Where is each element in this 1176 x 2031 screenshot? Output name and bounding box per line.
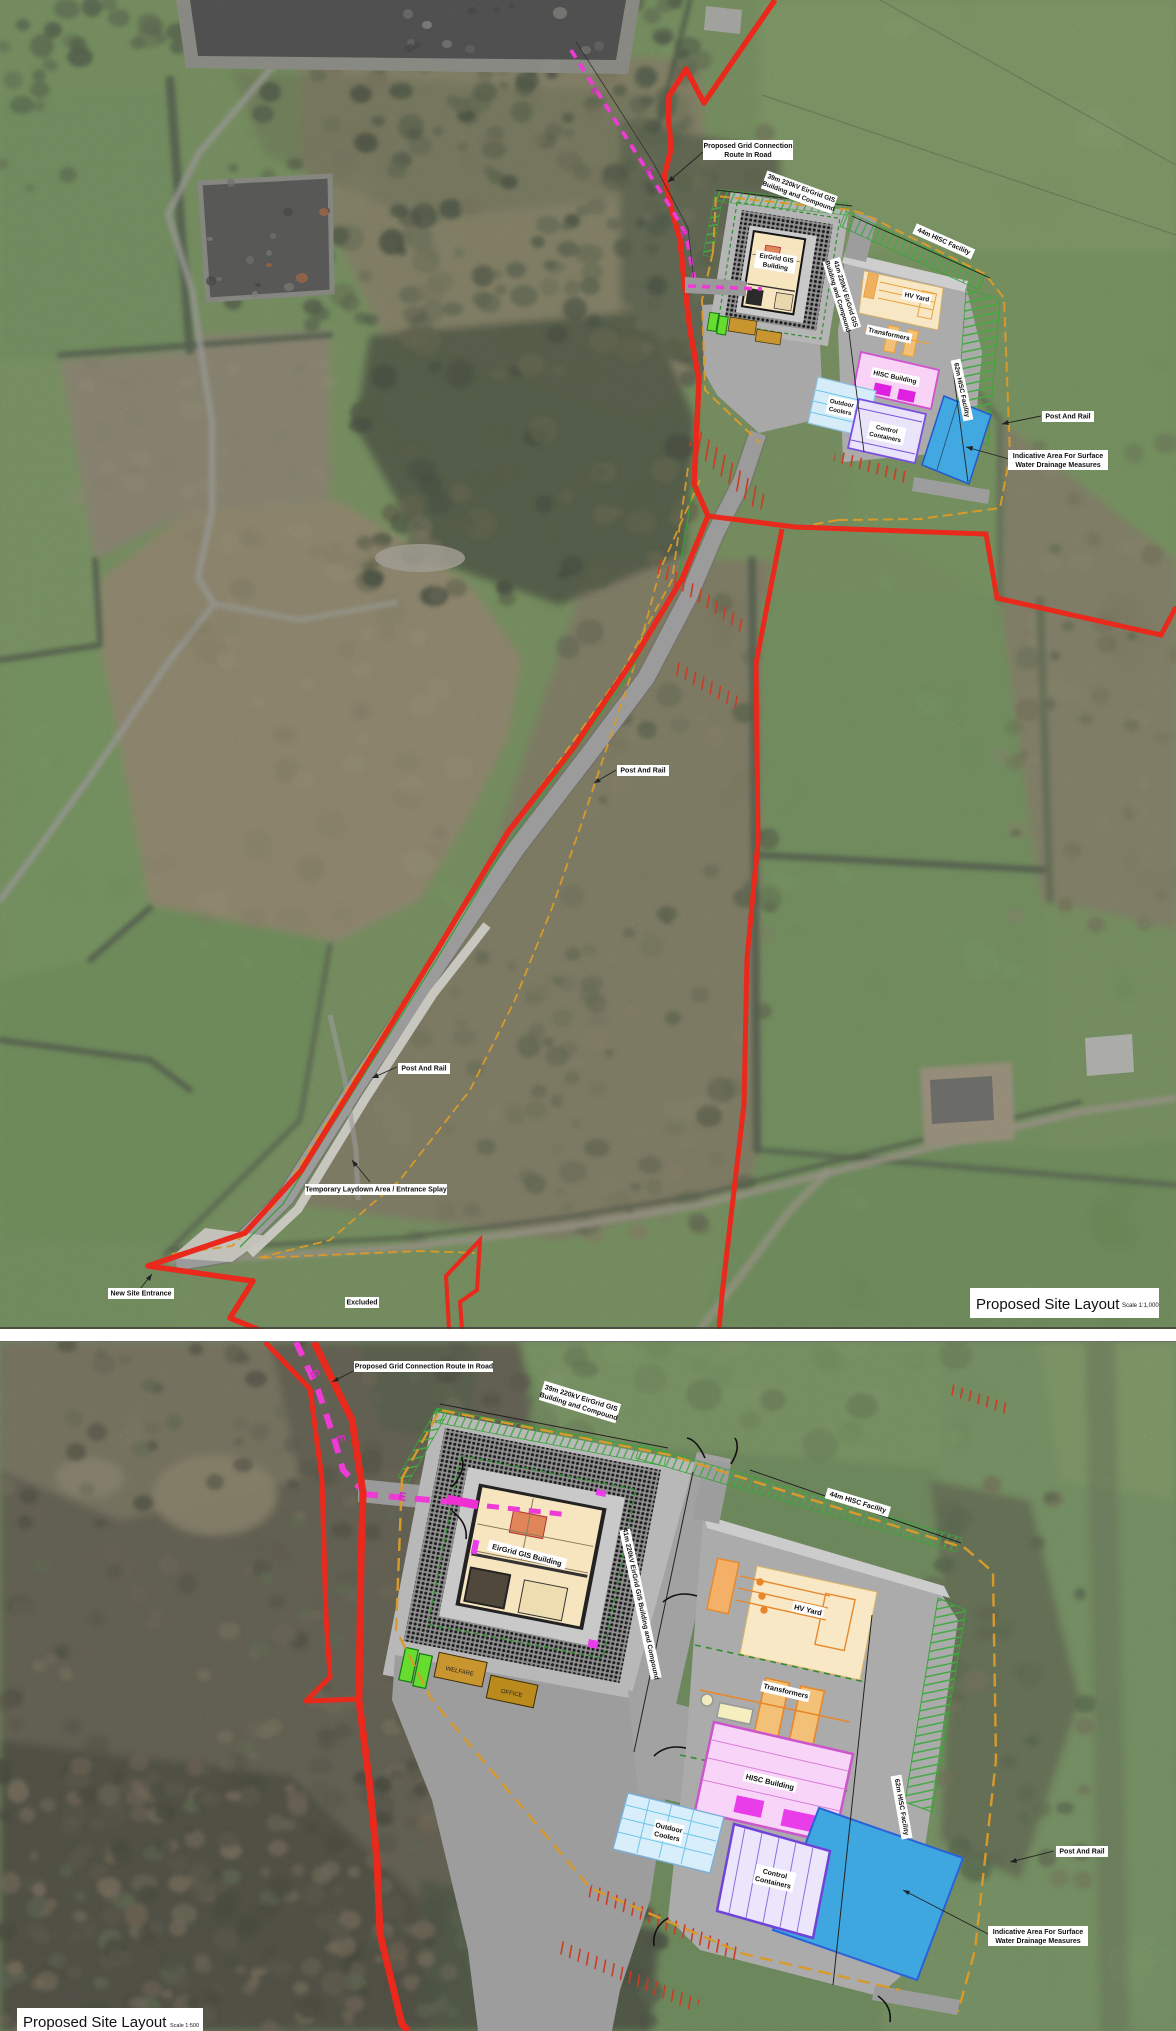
svg-text:Post And Rail: Post And Rail (401, 1065, 446, 1072)
svg-text:Proposed Grid Connection: Proposed Grid Connection (703, 143, 792, 150)
svg-text:Route In Road: Route In Road (724, 152, 771, 159)
svg-text:Water Drainage Measures: Water Drainage Measures (995, 1938, 1080, 1945)
svg-text:Excluded: Excluded (346, 1299, 377, 1306)
svg-text:Indicative Area For Surface: Indicative Area For Surface (993, 1929, 1083, 1936)
svg-text:Water Drainage Measures: Water Drainage Measures (1015, 462, 1100, 469)
svg-text:Post And Rail: Post And Rail (1059, 1848, 1104, 1855)
svg-text:Temporary Laydown Area / Entra: Temporary Laydown Area / Entrance Splay (305, 1186, 447, 1193)
svg-text:Scale 1:500: Scale 1:500 (170, 2023, 199, 2029)
svg-text:Proposed Grid Connection Route: Proposed Grid Connection Route In Road (355, 1363, 493, 1370)
svg-text:Indicative Area For Surface: Indicative Area For Surface (1013, 453, 1103, 460)
svg-text:Proposed Site Layout: Proposed Site Layout (23, 2014, 167, 2031)
svg-text:Scale 1:1,000: Scale 1:1,000 (1122, 1303, 1159, 1309)
svg-text:New Site Entrance: New Site Entrance (110, 1290, 171, 1297)
svg-text:Post And Rail: Post And Rail (1045, 413, 1090, 420)
svg-text:Post And Rail: Post And Rail (620, 767, 665, 774)
svg-text:Proposed Site Layout: Proposed Site Layout (976, 1296, 1120, 1313)
